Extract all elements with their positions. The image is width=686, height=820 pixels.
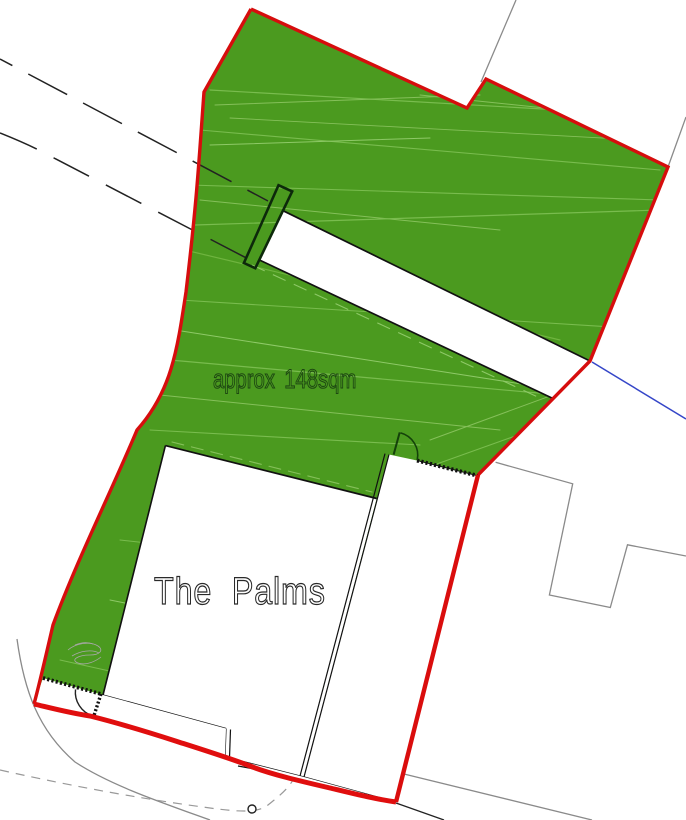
svg-text:approx 148sqm: approx 148sqm xyxy=(213,364,356,395)
svg-text:The Palms: The Palms xyxy=(154,571,326,613)
